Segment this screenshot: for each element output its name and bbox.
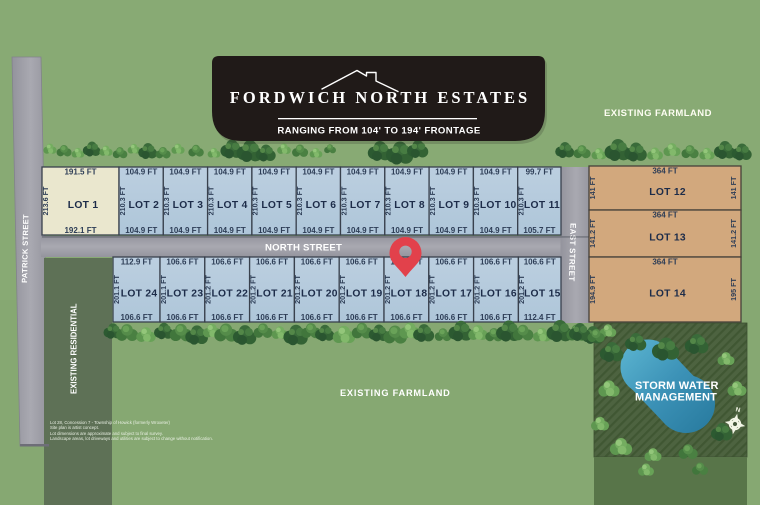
- svg-text:MANAGEMENT: MANAGEMENT: [635, 392, 717, 404]
- svg-text:106.6 FT: 106.6 FT: [120, 313, 152, 322]
- svg-text:EXISTING RESIDENTIAL: EXISTING RESIDENTIAL: [70, 303, 79, 394]
- svg-text:106.6 FT: 106.6 FT: [166, 313, 198, 322]
- svg-text:141 FT: 141 FT: [588, 176, 597, 199]
- svg-text:106.6 FT: 106.6 FT: [346, 257, 378, 266]
- svg-text:LOT 24: LOT 24: [121, 288, 158, 299]
- svg-text:210.3 FT: 210.3 FT: [339, 186, 348, 215]
- svg-text:210.3 FT: 210.3 FT: [118, 186, 127, 215]
- svg-text:LOT 7: LOT 7: [350, 200, 381, 211]
- svg-text:LOT 16: LOT 16: [480, 288, 517, 299]
- svg-text:104.9 FT: 104.9 FT: [125, 167, 157, 176]
- svg-text:Landscape areas, lot driveways: Landscape areas, lot driveways and utili…: [50, 436, 213, 441]
- svg-text:106.6 FT: 106.6 FT: [435, 257, 467, 266]
- svg-text:210.3 FT: 210.3 FT: [162, 186, 171, 215]
- svg-text:112.9 FT: 112.9 FT: [121, 257, 153, 266]
- svg-text:213.6 FT: 213.6 FT: [41, 186, 50, 215]
- svg-text:106.6 FT: 106.6 FT: [256, 313, 288, 322]
- svg-text:194.9 FT: 194.9 FT: [588, 275, 597, 304]
- svg-text:106.6 FT: 106.6 FT: [524, 257, 556, 266]
- svg-text:LOT 20: LOT 20: [301, 288, 338, 299]
- svg-text:106.6 FT: 106.6 FT: [346, 313, 378, 322]
- svg-text:106.6 FT: 106.6 FT: [301, 257, 333, 266]
- svg-text:364 FT: 364 FT: [652, 210, 677, 219]
- svg-text:104.9 FT: 104.9 FT: [480, 226, 512, 235]
- svg-text:210.3 FT: 210.3 FT: [251, 186, 260, 215]
- svg-text:106.6 FT: 106.6 FT: [435, 313, 467, 322]
- svg-text:EXISTING FARMLAND: EXISTING FARMLAND: [604, 108, 712, 119]
- svg-text:104.9 FT: 104.9 FT: [347, 167, 379, 176]
- svg-text:104.9 FT: 104.9 FT: [169, 226, 201, 235]
- svg-text:LOT 5: LOT 5: [261, 200, 292, 211]
- svg-text:LOT 8: LOT 8: [394, 200, 425, 211]
- svg-text:201.1 FT: 201.1 FT: [112, 275, 121, 304]
- svg-text:104.9 FT: 104.9 FT: [480, 167, 512, 176]
- svg-text:210.3 FT: 210.3 FT: [428, 186, 437, 215]
- svg-text:210.3 FT: 210.3 FT: [295, 186, 304, 215]
- svg-text:LOT 19: LOT 19: [346, 288, 383, 299]
- svg-text:106.6 FT: 106.6 FT: [211, 257, 243, 266]
- svg-text:191.5 FT: 191.5 FT: [64, 167, 96, 176]
- svg-text:RANGING FROM 104' TO 194' FRON: RANGING FROM 104' TO 194' FRONTAGE: [277, 126, 481, 137]
- svg-text:LOT 12: LOT 12: [649, 187, 686, 198]
- svg-text:192.1 FT: 192.1 FT: [64, 226, 96, 235]
- svg-text:104.9 FT: 104.9 FT: [125, 226, 157, 235]
- svg-text:99.7 FT: 99.7 FT: [526, 167, 554, 176]
- svg-text:104.9 FT: 104.9 FT: [347, 226, 379, 235]
- svg-text:LOT 14: LOT 14: [649, 288, 686, 299]
- svg-text:LOT 2: LOT 2: [128, 200, 159, 211]
- svg-text:LOT 13: LOT 13: [649, 232, 686, 243]
- svg-text:106.6 FT: 106.6 FT: [211, 313, 243, 322]
- svg-text:364 FT: 364 FT: [652, 166, 677, 175]
- svg-text:112.4 FT: 112.4 FT: [524, 313, 556, 322]
- svg-text:LOT 21: LOT 21: [256, 288, 293, 299]
- svg-text:105.7 FT: 105.7 FT: [523, 226, 555, 235]
- svg-text:104.9 FT: 104.9 FT: [258, 226, 290, 235]
- svg-text:LOT 9: LOT 9: [439, 200, 470, 211]
- svg-text:NORTH STREET: NORTH STREET: [265, 243, 342, 254]
- svg-text:141.2 FT: 141.2 FT: [588, 219, 597, 248]
- svg-text:104.9 FT: 104.9 FT: [302, 226, 334, 235]
- svg-text:LOT 22: LOT 22: [211, 288, 248, 299]
- svg-text:LOT 17: LOT 17: [435, 288, 472, 299]
- svg-text:FORDWICH NORTH ESTATES: FORDWICH NORTH ESTATES: [230, 88, 530, 107]
- svg-text:141.2 FT: 141.2 FT: [729, 219, 738, 248]
- svg-text:104.9 FT: 104.9 FT: [391, 167, 423, 176]
- svg-text:106.6 FT: 106.6 FT: [480, 257, 512, 266]
- svg-text:EXISTING FARMLAND: EXISTING FARMLAND: [340, 388, 451, 398]
- svg-text:LOT 15: LOT 15: [524, 288, 561, 299]
- svg-text:LOT 4: LOT 4: [217, 200, 248, 211]
- svg-text:106.6 FT: 106.6 FT: [166, 257, 198, 266]
- svg-text:104.9 FT: 104.9 FT: [435, 226, 467, 235]
- svg-text:PATRICK STREET: PATRICK STREET: [20, 214, 30, 283]
- svg-text:LOT 18: LOT 18: [391, 288, 428, 299]
- svg-text:104.9 FT: 104.9 FT: [169, 167, 201, 176]
- svg-text:LOT 1: LOT 1: [68, 200, 99, 211]
- svg-text:104.9 FT: 104.9 FT: [258, 167, 290, 176]
- svg-text:210.3 FT: 210.3 FT: [384, 186, 393, 215]
- svg-text:106.6 FT: 106.6 FT: [390, 313, 422, 322]
- svg-text:106.6 FT: 106.6 FT: [256, 257, 288, 266]
- svg-text:104.9 FT: 104.9 FT: [214, 167, 246, 176]
- svg-text:LOT 10: LOT 10: [480, 200, 517, 211]
- svg-text:141 FT: 141 FT: [729, 176, 738, 199]
- svg-text:195 FT: 195 FT: [729, 278, 738, 301]
- svg-text:LOT 6: LOT 6: [306, 200, 337, 211]
- svg-text:104.9 FT: 104.9 FT: [214, 226, 246, 235]
- svg-text:LOT 23: LOT 23: [167, 288, 204, 299]
- svg-text:Site plan is artist concept.: Site plan is artist concept.: [50, 425, 99, 430]
- svg-text:210.3 FT: 210.3 FT: [206, 186, 215, 215]
- svg-text:104.9 FT: 104.9 FT: [391, 226, 423, 235]
- svg-text:106.6 FT: 106.6 FT: [301, 313, 333, 322]
- svg-text:LOT 11: LOT 11: [524, 200, 560, 211]
- svg-text:EAST STREET: EAST STREET: [567, 223, 578, 282]
- svg-text:364 FT: 364 FT: [652, 257, 677, 266]
- svg-text:106.6 FT: 106.6 FT: [480, 313, 512, 322]
- svg-text:104.9 FT: 104.9 FT: [302, 167, 334, 176]
- svg-text:LOT 3: LOT 3: [173, 200, 204, 211]
- svg-text:STORM WATER: STORM WATER: [635, 380, 719, 392]
- svg-text:104.9 FT: 104.9 FT: [435, 167, 467, 176]
